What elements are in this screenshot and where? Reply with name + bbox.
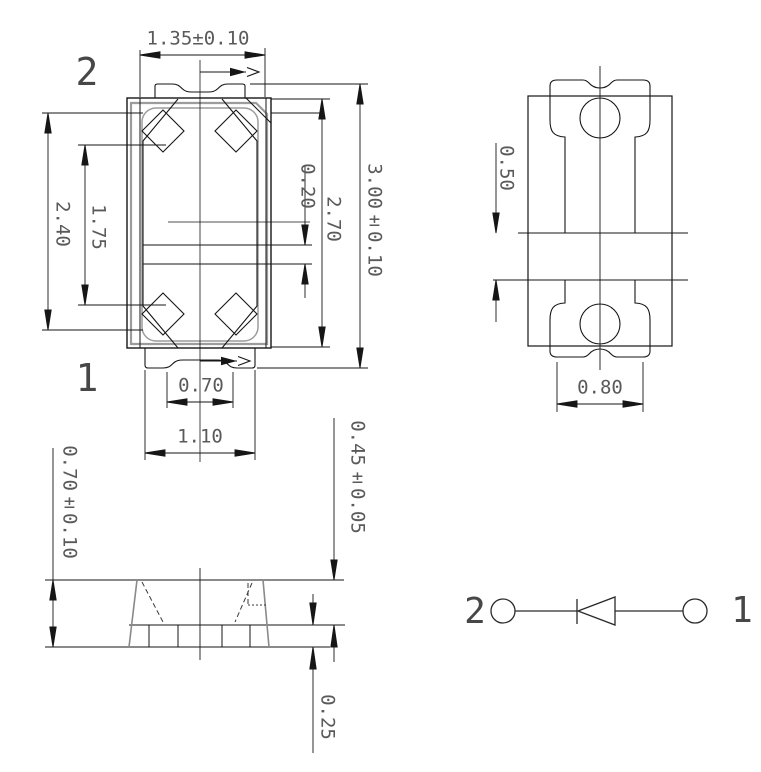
dim-pad-width-label: 0.80 xyxy=(577,379,623,398)
drawing-lines xyxy=(0,0,761,772)
dim-side-lead-height-label: 0.25 xyxy=(318,694,337,740)
pad-layout-lines xyxy=(493,66,688,370)
dim-side-total-height-label: 0.70±0.10 xyxy=(60,445,79,559)
dim-body-height-label: 2.70 xyxy=(324,196,343,242)
dim-side-upper-height-label: 0.45±0.05 xyxy=(348,420,367,534)
diode-triangle xyxy=(578,597,615,625)
dim-pad-gap-label: 0.50 xyxy=(497,145,516,191)
schematic-lines xyxy=(491,597,707,625)
schematic-pin-2-label: 2 xyxy=(464,594,486,630)
terminal-1-circle xyxy=(683,599,707,623)
dim-cavity-height-label: 2.40 xyxy=(53,201,72,247)
dim-tab-width-label: 1.10 xyxy=(177,428,223,447)
schematic-pin-1-label: 1 xyxy=(731,593,753,629)
dim-notch-width-label: 0.70 xyxy=(178,377,224,396)
side-view-lines xyxy=(45,568,345,660)
dim-total-height-label: 3.00±0.10 xyxy=(365,163,384,277)
engineering-drawing: 1.35±0.10 2 1 2.40 1.75 0.20 2.70 3.00±0… xyxy=(0,0,761,772)
pin-2-label: 2 xyxy=(76,53,99,91)
side-view-dimension-lines xyxy=(50,418,337,753)
dim-inner-pitch-label: 1.75 xyxy=(89,204,108,250)
pin-1-label: 1 xyxy=(76,359,99,397)
dim-top-width-label: 1.35±0.10 xyxy=(147,30,250,49)
dim-electrode-gap-label: 0.20 xyxy=(298,163,317,209)
terminal-2-circle xyxy=(491,599,515,623)
